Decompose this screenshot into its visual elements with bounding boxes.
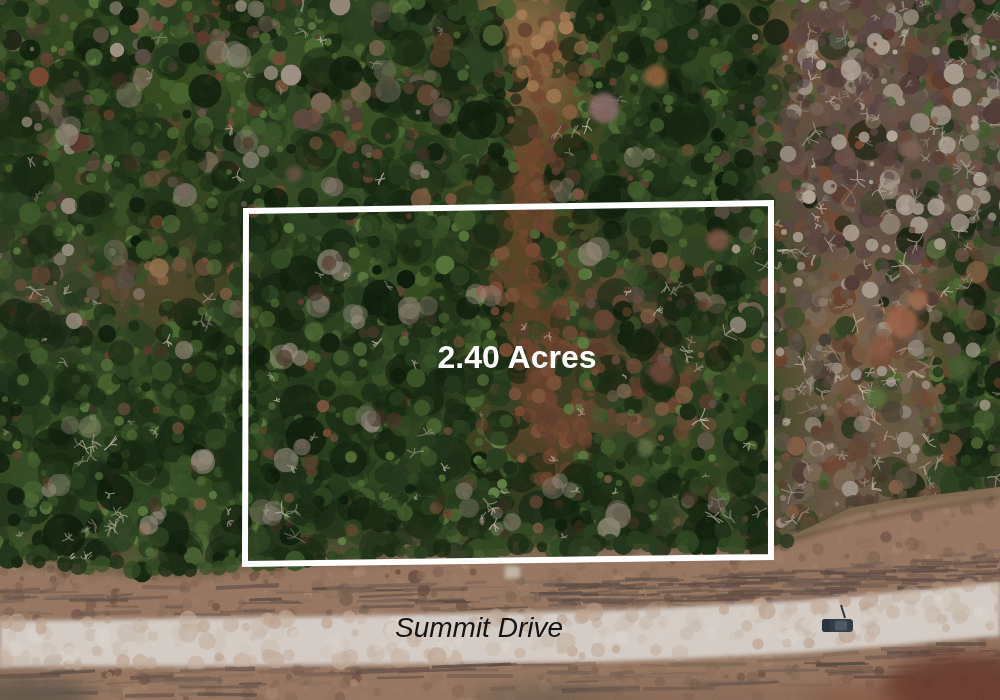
svg-text:2.40 Acres: 2.40 Acres [438, 339, 597, 375]
svg-text:Summit Drive: Summit Drive [395, 612, 563, 643]
